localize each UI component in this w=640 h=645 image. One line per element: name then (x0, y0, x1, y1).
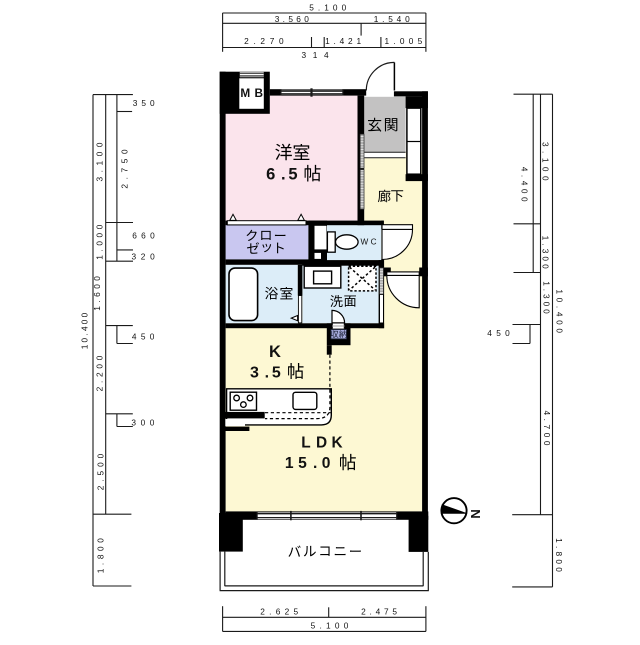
svg-text:3: 3 (250, 364, 259, 381)
svg-text:C: C (371, 238, 377, 247)
svg-text:450: 450 (132, 331, 155, 341)
svg-text:0: 0 (322, 455, 331, 472)
svg-text:5: 5 (272, 364, 281, 381)
svg-text:6: 6 (266, 166, 275, 184)
svg-text:314: 314 (302, 50, 329, 60)
svg-text:N: N (468, 509, 483, 518)
svg-text:1: 1 (285, 455, 294, 472)
svg-text:450: 450 (487, 328, 510, 338)
svg-text:5: 5 (298, 455, 307, 472)
svg-text:300: 300 (131, 418, 154, 428)
svg-text:.: . (281, 166, 286, 184)
svg-text:320: 320 (132, 251, 156, 261)
svg-text:L: L (301, 435, 310, 452)
svg-text:D: D (316, 435, 327, 452)
svg-text:M: M (240, 86, 250, 100)
svg-text:W: W (361, 238, 369, 247)
svg-text:B: B (255, 86, 264, 100)
svg-text:660: 660 (132, 231, 155, 241)
svg-text:K: K (269, 343, 281, 361)
svg-text:5: 5 (288, 166, 297, 184)
svg-text:350: 350 (133, 98, 155, 108)
svg-text:K: K (331, 435, 342, 452)
svg-text:.: . (313, 455, 317, 472)
svg-text:.: . (265, 364, 269, 381)
